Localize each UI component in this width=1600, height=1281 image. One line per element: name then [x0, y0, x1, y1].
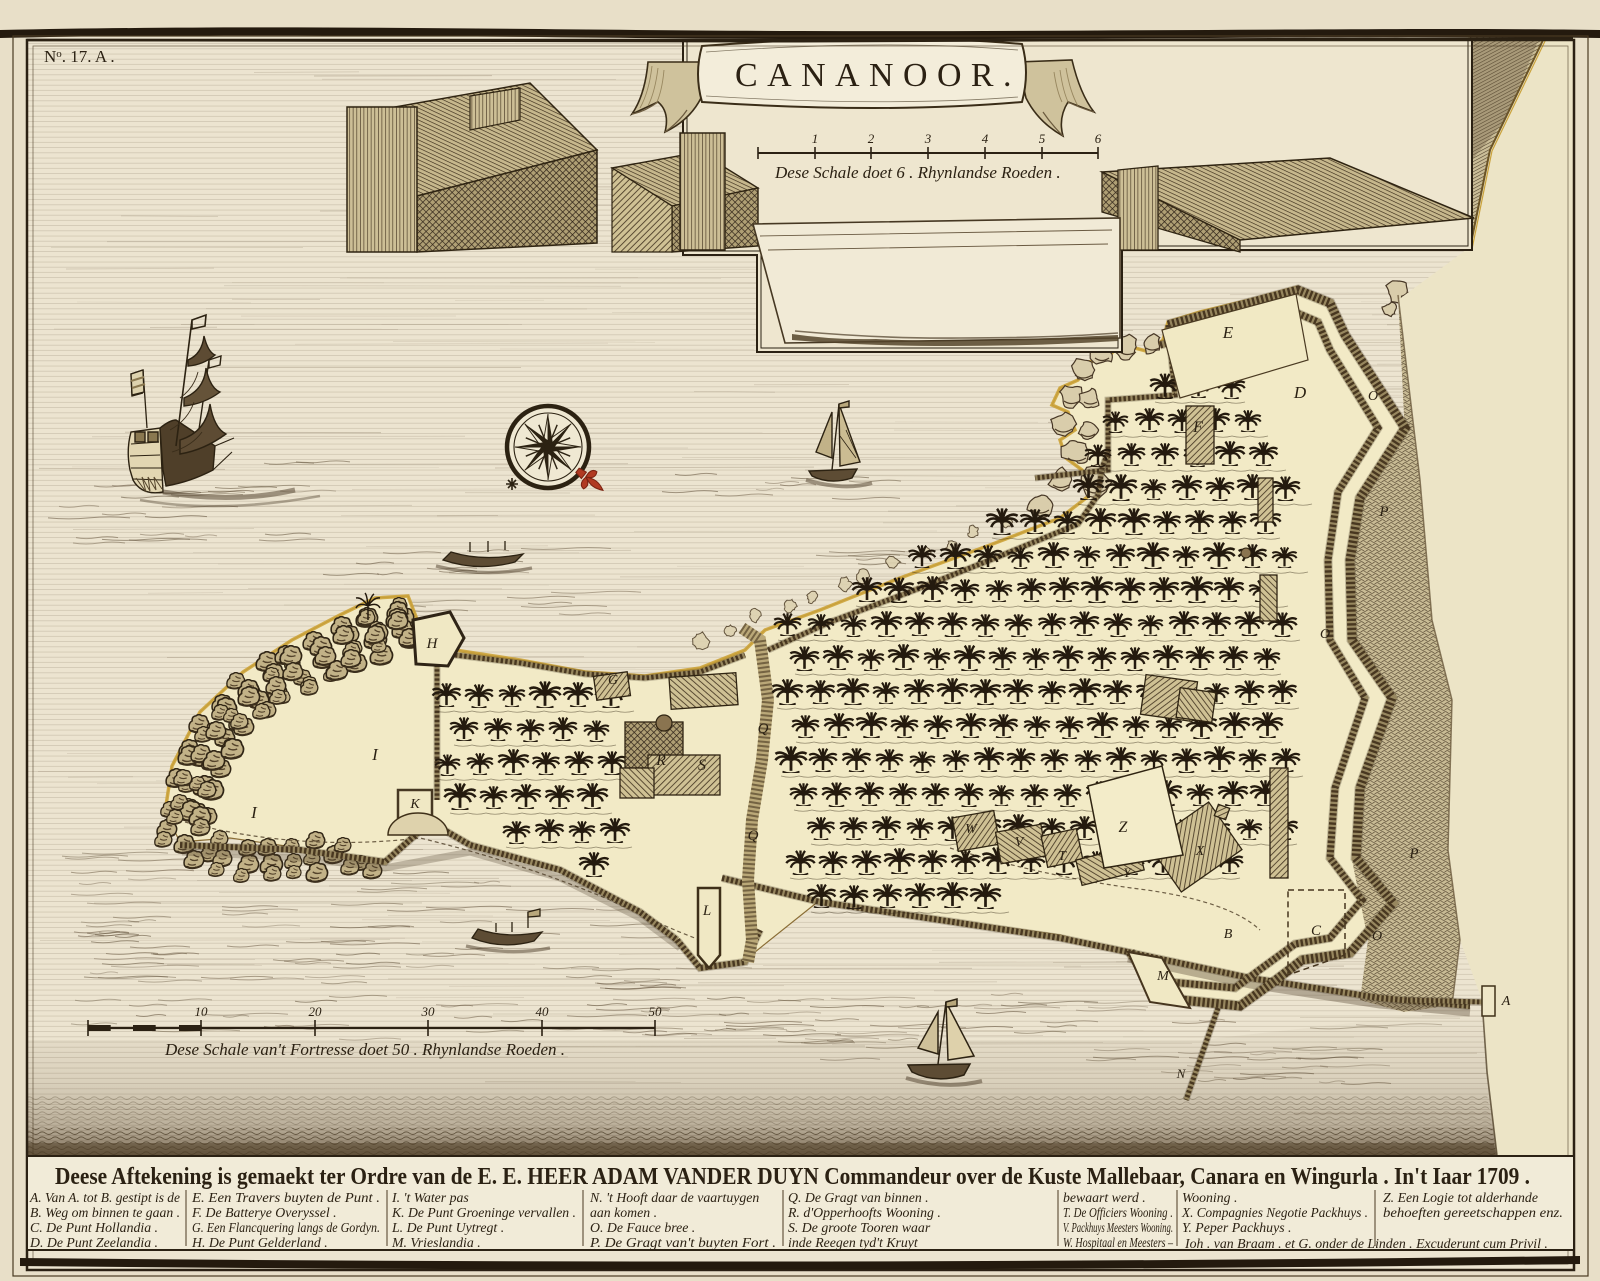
svg-text:40: 40 [536, 1004, 550, 1019]
svg-text:O: O [1372, 929, 1382, 944]
svg-text:A: A [1501, 994, 1511, 1009]
svg-text:H. De Punt Gelderland .: H. De Punt Gelderland . [191, 1235, 328, 1250]
svg-text:O: O [1368, 389, 1378, 404]
svg-text:B. Weg om binnen te gaan .: B. Weg om binnen te gaan . [30, 1205, 180, 1220]
svg-text:S: S [698, 757, 706, 774]
svg-text:X. Compagnies Negotie Packhuys: X. Compagnies Negotie Packhuys . [1181, 1205, 1368, 1220]
svg-text:C. De Punt Hollandia .: C. De Punt Hollandia . [30, 1220, 158, 1235]
svg-text:F. De Batterye Overyssel .: F. De Batterye Overyssel . [191, 1205, 337, 1220]
svg-text:Z: Z [1119, 819, 1129, 836]
svg-text:P: P [1408, 846, 1418, 862]
svg-text:Q: Q [748, 828, 759, 844]
svg-text:H: H [426, 636, 439, 652]
svg-text:Ioh . van Braam . et G. onder: Ioh . van Braam . et G. onder de Linden … [1184, 1236, 1548, 1251]
svg-text:5: 5 [1039, 131, 1046, 146]
svg-text:3: 3 [924, 131, 932, 146]
svg-text:K. De Punt Groeninge vervallen: K. De Punt Groeninge vervallen . [391, 1205, 576, 1220]
svg-text:N. 't Hooft daar de vaartuygen: N. 't Hooft daar de vaartuygen [589, 1190, 759, 1205]
svg-text:30: 30 [421, 1004, 436, 1019]
svg-text:CANANOOR.: CANANOOR. [735, 57, 1021, 94]
svg-text:Deese Aftekening is gemaekt te: Deese Aftekening is gemaekt ter Ordre va… [55, 1164, 1530, 1190]
svg-text:Q: Q [758, 721, 769, 737]
svg-text:K: K [409, 797, 420, 812]
svg-text:W. Hospitaal en Meesters –: W. Hospitaal en Meesters – [1063, 1235, 1173, 1250]
svg-text:N: N [1176, 1066, 1187, 1081]
svg-text:I. 't Water pas: I. 't Water pas [391, 1190, 469, 1205]
svg-text:Dese Schale van't Fortresse do: Dese Schale van't Fortresse doet 50 . Rh… [164, 1040, 565, 1059]
svg-text:Wooning .: Wooning . [1182, 1190, 1237, 1205]
svg-text:T: T [1058, 849, 1067, 864]
svg-text:aan komen .: aan komen . [590, 1205, 657, 1220]
svg-text:6: 6 [1095, 131, 1102, 146]
svg-text:B: B [1224, 927, 1233, 942]
svg-text:inde Reegen tyd't Kruyt: inde Reegen tyd't Kruyt [788, 1235, 919, 1250]
svg-text:D. De Punt Zeelandia .: D. De Punt Zeelandia . [29, 1235, 158, 1250]
svg-text:4: 4 [982, 131, 989, 146]
svg-text:V. Packhuys Meesters Wooning.: V. Packhuys Meesters Wooning. [1063, 1220, 1173, 1235]
svg-text:behoeften gereetschappen enz.: behoeften gereetschappen enz. [1383, 1205, 1563, 1220]
svg-text:M: M [1156, 969, 1170, 984]
svg-text:20: 20 [309, 1004, 323, 1019]
svg-text:V: V [1015, 835, 1025, 850]
svg-text:F: F [1192, 419, 1203, 436]
svg-text:A. Van A. tot B. gestipt is de: A. Van A. tot B. gestipt is de [29, 1190, 180, 1205]
svg-text:Z. Een Logie tot alderhande: Z. Een Logie tot alderhande [1383, 1190, 1538, 1205]
svg-text:Q. De Gragt van binnen .: Q. De Gragt van binnen . [788, 1190, 929, 1205]
svg-text:R. d'Opperhoofts Wooning .: R. d'Opperhoofts Wooning . [787, 1205, 941, 1220]
svg-text:G. Een Flancquering langs de G: G. Een Flancquering langs de Gordyn. [192, 1220, 380, 1235]
svg-text:10: 10 [195, 1004, 209, 1019]
svg-text:E: E [1222, 323, 1234, 342]
svg-text:Dese Schale doet 6 . Rhynland: Dese Schale doet 6 . Rhynlandse Roeden . [774, 163, 1061, 182]
svg-text:X: X [1195, 844, 1205, 859]
svg-text:1: 1 [812, 131, 819, 146]
svg-text:T. De Officiers Wooning .: T. De Officiers Wooning . [1063, 1205, 1173, 1220]
svg-text:L. De Punt Uytregt .: L. De Punt Uytregt . [391, 1220, 504, 1235]
svg-text:50: 50 [649, 1004, 663, 1019]
svg-text:bewaart werd .: bewaart werd . [1063, 1190, 1146, 1205]
svg-text:G: G [608, 673, 618, 688]
svg-text:M. Vrieslandia .: M. Vrieslandia . [391, 1235, 481, 1250]
svg-text:R: R [655, 752, 666, 769]
svg-text:P. De Gragt van't buyten Fort: P. De Gragt van't buyten Fort . [589, 1235, 776, 1250]
svg-text:L: L [702, 903, 711, 919]
svg-text:D: D [1293, 383, 1307, 402]
svg-text:2: 2 [868, 131, 875, 146]
svg-text:O. De Fauce bree .: O. De Fauce bree . [590, 1220, 695, 1235]
svg-text:S. De groote Tooren waar: S. De groote Tooren waar [788, 1220, 931, 1235]
svg-text:E. Een Travers buyten de Punt: E. Een Travers buyten de Punt . [191, 1190, 380, 1205]
svg-text:W: W [965, 822, 978, 837]
svg-text:Y. Peper Packhuys .: Y. Peper Packhuys . [1182, 1220, 1291, 1235]
svg-text:No. 17. A .: No. 17. A . [44, 47, 115, 66]
svg-text:O: O [1320, 627, 1330, 642]
svg-text:C: C [1311, 923, 1322, 939]
svg-text:P: P [1378, 504, 1388, 520]
